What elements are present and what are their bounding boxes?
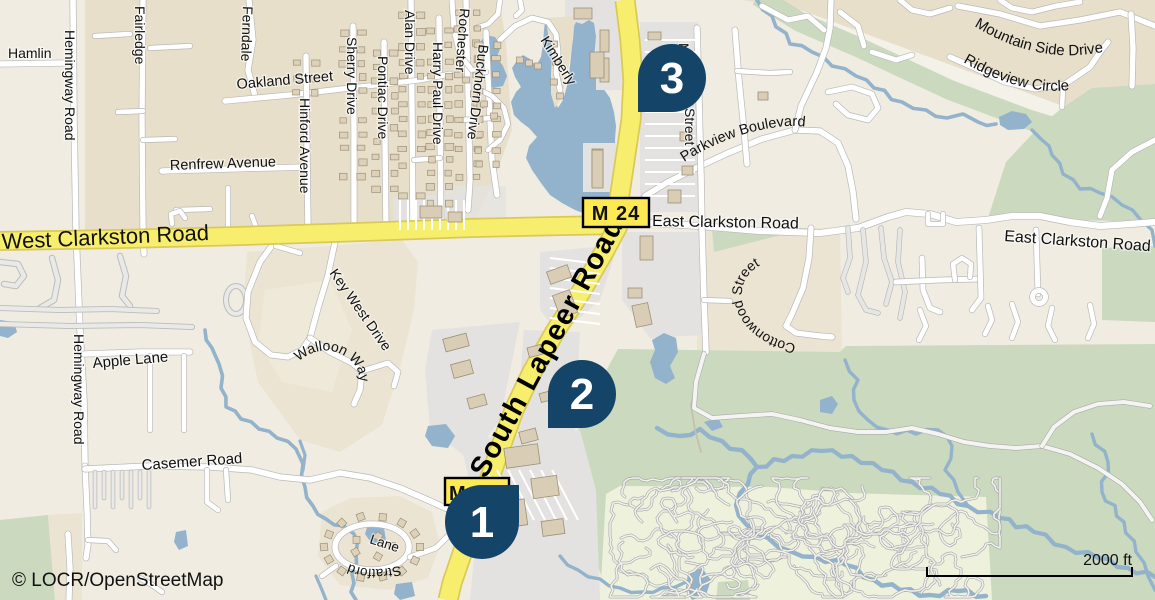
svg-text:2000 ft: 2000 ft xyxy=(1083,552,1132,569)
svg-text:2: 2 xyxy=(570,370,594,419)
svg-text:1: 1 xyxy=(470,498,494,547)
svg-text:Harry Paul Drive: Harry Paul Drive xyxy=(430,42,446,145)
svg-text:Pontiac Drive: Pontiac Drive xyxy=(375,56,391,139)
svg-text:Hamlin: Hamlin xyxy=(8,45,52,61)
svg-text:Ferndale: Ferndale xyxy=(238,6,256,62)
svg-text:Hinford Avenue: Hinford Avenue xyxy=(297,98,313,194)
svg-text:Hemingway Road: Hemingway Road xyxy=(62,30,78,141)
svg-text:3: 3 xyxy=(660,54,684,103)
svg-text:Hemingway Road: Hemingway Road xyxy=(71,334,87,445)
svg-text:Sherry Drive: Sherry Drive xyxy=(344,37,360,115)
svg-text:© LOCR/OpenStreetMap: © LOCR/OpenStreetMap xyxy=(12,570,223,591)
svg-text:Fairledge: Fairledge xyxy=(132,6,148,65)
svg-text:Street: Street xyxy=(682,108,698,145)
svg-text:Alan Drive: Alan Drive xyxy=(402,10,418,75)
svg-text:East Clarkston Road: East Clarkston Road xyxy=(652,213,799,233)
svg-text:M 24: M 24 xyxy=(592,203,640,225)
